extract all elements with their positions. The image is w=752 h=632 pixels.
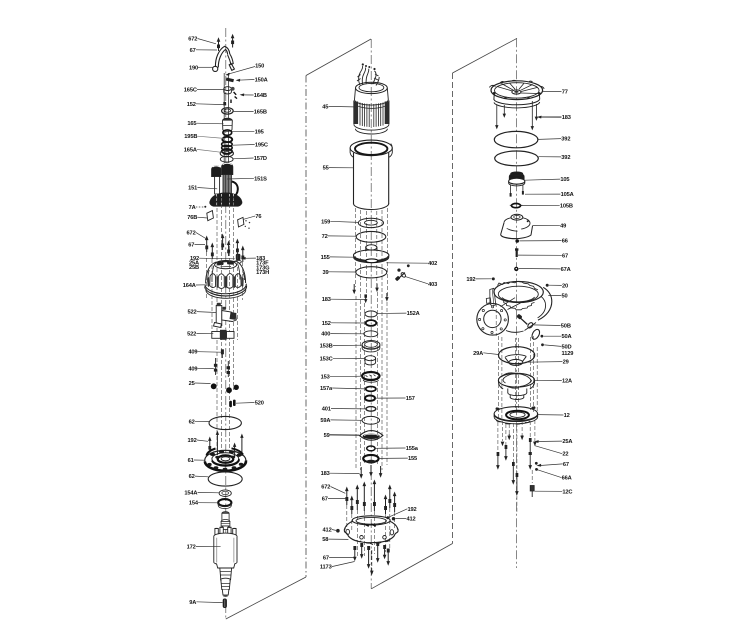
svg-text:76: 76 <box>255 214 261 220</box>
svg-text:195C: 195C <box>255 143 268 149</box>
svg-text:157: 157 <box>406 396 415 402</box>
svg-text:522: 522 <box>187 331 196 337</box>
svg-text:183: 183 <box>321 471 330 477</box>
svg-text:195: 195 <box>255 129 264 135</box>
svg-text:672: 672 <box>321 485 330 491</box>
svg-text:49: 49 <box>560 223 566 229</box>
svg-text:401: 401 <box>322 407 331 413</box>
svg-text:67A: 67A <box>561 267 571 273</box>
svg-text:1173: 1173 <box>320 565 332 571</box>
svg-text:183: 183 <box>322 297 331 303</box>
svg-text:50B: 50B <box>561 324 571 330</box>
svg-text:402: 402 <box>428 261 437 267</box>
svg-text:192: 192 <box>466 277 475 283</box>
svg-text:61: 61 <box>188 458 194 464</box>
svg-text:59A: 59A <box>320 418 330 424</box>
svg-text:25A: 25A <box>562 439 572 445</box>
svg-text:672: 672 <box>187 230 196 236</box>
svg-text:155: 155 <box>408 456 417 462</box>
svg-text:12: 12 <box>564 413 570 419</box>
svg-text:67: 67 <box>562 253 568 259</box>
svg-text:62: 62 <box>189 474 195 480</box>
svg-text:173H: 173H <box>256 270 269 276</box>
svg-text:72: 72 <box>322 234 328 240</box>
svg-text:105B: 105B <box>560 204 573 210</box>
svg-text:25B: 25B <box>189 265 199 271</box>
svg-text:67: 67 <box>563 462 569 468</box>
svg-text:67: 67 <box>323 556 329 562</box>
svg-text:20: 20 <box>562 283 568 289</box>
svg-text:152: 152 <box>322 321 331 327</box>
svg-text:153: 153 <box>321 375 330 381</box>
svg-text:392: 392 <box>561 155 570 161</box>
svg-text:154: 154 <box>189 501 199 507</box>
svg-text:152A: 152A <box>407 311 420 317</box>
svg-text:9A: 9A <box>189 600 196 606</box>
svg-text:55: 55 <box>323 166 329 172</box>
svg-text:77: 77 <box>562 90 568 96</box>
svg-text:29A: 29A <box>473 351 483 357</box>
svg-text:58: 58 <box>322 537 328 543</box>
svg-text:400: 400 <box>321 332 330 338</box>
svg-text:165B: 165B <box>254 109 267 115</box>
svg-text:159: 159 <box>321 219 330 225</box>
svg-text:25: 25 <box>189 381 195 387</box>
svg-text:12C: 12C <box>562 489 572 495</box>
svg-text:151S: 151S <box>254 176 267 182</box>
svg-text:50A: 50A <box>562 334 572 340</box>
svg-text:164B: 164B <box>254 93 267 99</box>
svg-text:12A: 12A <box>562 378 572 384</box>
svg-text:157D: 157D <box>254 156 267 162</box>
svg-text:165A: 165A <box>184 147 197 153</box>
svg-text:67: 67 <box>322 497 328 503</box>
svg-text:190: 190 <box>189 65 198 71</box>
svg-text:76B: 76B <box>187 215 197 221</box>
svg-text:50D: 50D <box>562 344 572 350</box>
svg-text:62: 62 <box>189 420 195 426</box>
svg-text:164A: 164A <box>183 283 196 289</box>
svg-text:195B: 195B <box>184 134 197 140</box>
svg-text:522: 522 <box>187 310 196 316</box>
svg-text:45: 45 <box>322 104 328 110</box>
svg-text:39: 39 <box>322 270 328 276</box>
svg-text:7A: 7A <box>189 205 196 211</box>
svg-text:412: 412 <box>407 516 416 522</box>
svg-text:67: 67 <box>188 243 194 249</box>
svg-text:155a: 155a <box>406 446 419 452</box>
svg-text:66A: 66A <box>562 476 572 482</box>
svg-text:105A: 105A <box>561 192 574 198</box>
svg-text:172: 172 <box>187 545 196 551</box>
svg-text:22: 22 <box>562 452 568 458</box>
svg-text:412: 412 <box>323 528 332 534</box>
svg-text:192: 192 <box>188 438 197 444</box>
svg-text:155: 155 <box>321 255 330 261</box>
svg-text:50: 50 <box>562 294 568 300</box>
svg-text:150A: 150A <box>255 78 268 84</box>
svg-text:105: 105 <box>560 177 569 183</box>
svg-text:150: 150 <box>255 63 264 69</box>
svg-text:192: 192 <box>408 507 417 513</box>
svg-text:672: 672 <box>188 36 197 42</box>
svg-text:183: 183 <box>562 115 571 121</box>
svg-text:409: 409 <box>188 366 197 372</box>
svg-text:520: 520 <box>255 401 264 407</box>
svg-text:154A: 154A <box>184 490 197 496</box>
svg-text:409: 409 <box>188 350 197 356</box>
svg-text:151: 151 <box>188 186 197 192</box>
svg-text:157a: 157a <box>320 386 333 392</box>
svg-text:165C: 165C <box>184 88 197 94</box>
svg-text:165: 165 <box>187 121 196 127</box>
svg-text:59: 59 <box>324 433 330 439</box>
svg-text:153B: 153B <box>320 344 333 350</box>
svg-text:29: 29 <box>563 360 569 366</box>
svg-text:392: 392 <box>561 137 570 143</box>
svg-text:152: 152 <box>187 102 196 108</box>
svg-text:403: 403 <box>428 282 437 288</box>
svg-text:67: 67 <box>190 48 196 54</box>
svg-text:153C: 153C <box>320 357 333 363</box>
svg-text:66: 66 <box>562 239 568 245</box>
svg-text:1129: 1129 <box>562 351 574 357</box>
